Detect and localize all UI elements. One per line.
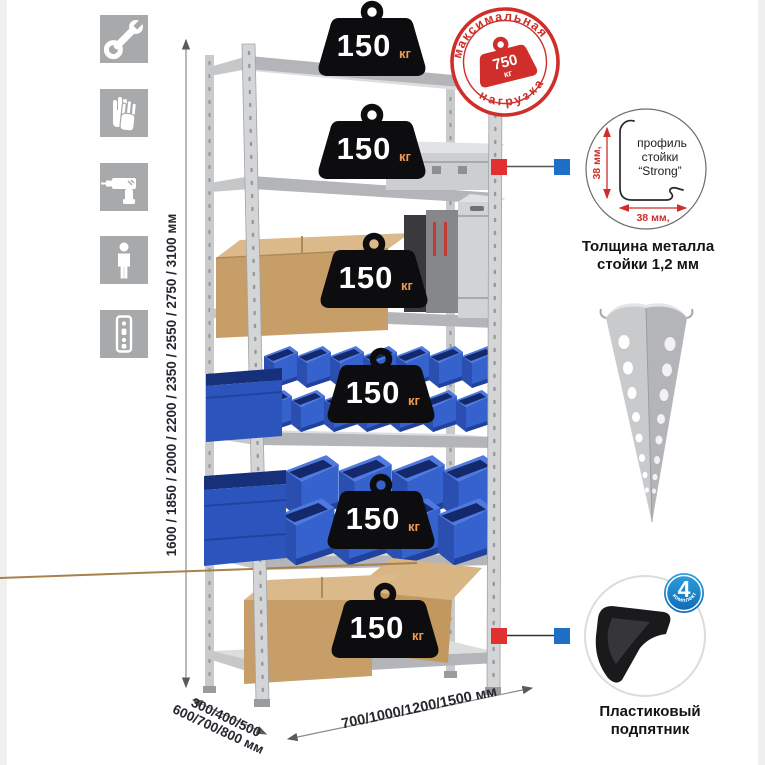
svg-text:150: 150	[339, 260, 394, 295]
upright-profile-icon	[100, 310, 148, 358]
drill-icon	[100, 163, 148, 211]
foot-caption-1: Пластиковый	[599, 703, 700, 720]
svg-text:кг: кг	[399, 149, 412, 164]
blue-bin-side-shelf4	[206, 368, 282, 442]
svg-text:150: 150	[346, 501, 401, 536]
shelving-rack	[0, 44, 506, 707]
svg-text:150: 150	[346, 375, 401, 410]
profile-dim-horizontal: 38 мм,	[636, 212, 669, 224]
profile-dim-vertical: 38 мм,	[591, 146, 603, 179]
infographic-svg: 150 кг 150 кг 150 кг 150 кг 150 кг	[0, 0, 765, 765]
profile-label-3: “Strong”	[638, 164, 681, 178]
profile-callout-circle: 38 мм, 38 мм, профиль стойки “Strong”	[586, 109, 706, 229]
red-marker	[491, 628, 507, 644]
height-values: 1600 / 1850 / 2000 / 2200 / 2350 / 2550 …	[164, 214, 179, 557]
blue-bin-side-shelf5	[204, 470, 286, 566]
red-marker	[491, 159, 507, 175]
profile-caption-1: Толщина металла	[582, 238, 715, 255]
gloves-icon	[100, 89, 148, 137]
upright-profile-photo	[601, 303, 693, 524]
product-infographic: 150 кг 150 кг 150 кг 150 кг 150 кг	[0, 0, 765, 765]
foot-caption-2: подпятник	[611, 721, 690, 738]
blue-marker	[554, 159, 570, 175]
blue-marker	[554, 628, 570, 644]
weight-badge: 150 кг	[319, 4, 426, 76]
wrench-icon	[100, 15, 148, 63]
weight-badge: 150 кг	[319, 107, 426, 179]
person-icon	[100, 236, 148, 284]
svg-text:кг: кг	[412, 628, 425, 643]
profile-label-2: стойки	[642, 150, 679, 164]
foot-connector	[491, 628, 570, 644]
profile-label-1: профиль	[637, 136, 687, 150]
profile-caption-2: стойки 1,2 мм	[597, 256, 699, 273]
load-unit: кг	[399, 46, 412, 61]
profile-connector	[491, 159, 570, 175]
width-dimension: 700/1000/1200/1500 мм	[288, 684, 532, 739]
load-value: 150	[337, 28, 392, 63]
svg-text:кг: кг	[408, 519, 421, 534]
features-panel	[100, 15, 148, 358]
svg-text:150: 150	[350, 610, 405, 645]
svg-text:кг: кг	[401, 278, 414, 293]
svg-text:150: 150	[337, 131, 392, 166]
width-values: 700/1000/1200/1500 мм	[340, 684, 498, 733]
max-load-stamp: максимальная нагрузка 750 кг	[441, 0, 569, 126]
height-dimension: 1600 / 1850 / 2000 / 2200 / 2350 / 2550 …	[164, 40, 186, 687]
svg-text:кг: кг	[408, 393, 421, 408]
